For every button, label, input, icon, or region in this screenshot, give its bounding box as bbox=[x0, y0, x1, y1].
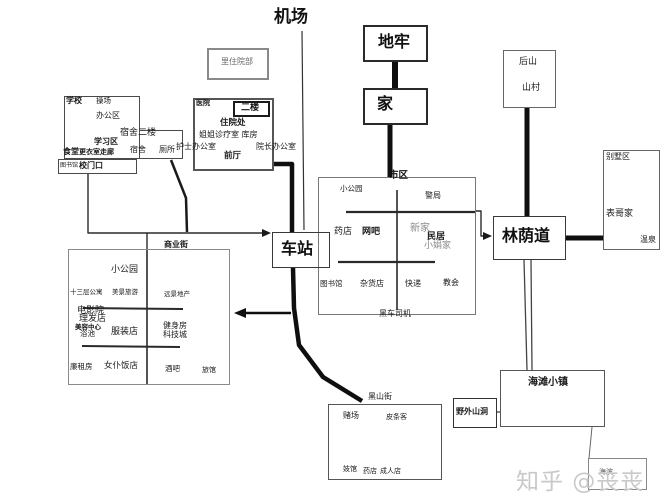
inpatient-office-label: 住院处 bbox=[220, 119, 246, 128]
adult-store-label: 成人店 bbox=[380, 468, 401, 476]
sister-clinic-label: 姐姐诊疗室 库房 bbox=[199, 131, 258, 140]
boulevard-label: 林荫道 bbox=[502, 227, 550, 245]
director-office-label: 院长办公室 bbox=[256, 143, 296, 152]
zhihu-watermark: 知乎 @丧丧者 bbox=[516, 462, 666, 500]
downtown-pharmacy-label: 药店 bbox=[334, 228, 352, 238]
dungeon-label: 地牢 bbox=[378, 33, 410, 51]
brothel-label: 妓馆 bbox=[343, 466, 357, 474]
boulevard-beach-road-1 bbox=[524, 260, 527, 370]
office-area-label: 办公区 bbox=[96, 112, 120, 121]
downtown-label: 市区 bbox=[389, 171, 408, 181]
hospital-label: 医院 bbox=[196, 99, 210, 107]
downtown-library-label: 图书馆 bbox=[320, 280, 343, 288]
dorm-2f-label: 宿舍二楼 bbox=[120, 129, 156, 139]
hospital-station-link bbox=[274, 164, 292, 232]
airport-road bbox=[302, 31, 304, 230]
apartment-13f-label: 十三层公寓 bbox=[70, 289, 103, 296]
downtown-small-park-label: 小公园 bbox=[340, 185, 363, 193]
clothing-store-label: 服装店 bbox=[111, 328, 138, 338]
gate-station-road bbox=[88, 174, 264, 233]
home-label: 家 bbox=[377, 95, 393, 113]
school-label: 学校 bbox=[66, 96, 82, 105]
station-arrow bbox=[262, 229, 271, 237]
tech-city-label: 科技城 bbox=[163, 331, 187, 340]
cousin-home-label: 表哥家 bbox=[606, 210, 633, 220]
hotel-label: 旅馆 bbox=[202, 367, 216, 375]
boulevard-arrow bbox=[483, 232, 492, 240]
beach-seaside-link bbox=[589, 427, 592, 458]
toilet-label: 厕所 bbox=[159, 146, 175, 155]
school-gate-label: 校门口 bbox=[79, 161, 103, 170]
school-library-label: 图书馆 bbox=[60, 163, 78, 170]
police-label: 警局 bbox=[425, 192, 441, 201]
station-label: 车站 bbox=[281, 240, 313, 258]
villa-district-label: 别墅区 bbox=[606, 153, 630, 162]
outdoor-cave-label: 野外山洞 bbox=[456, 407, 488, 416]
blackhill-street-label: 黑山街 bbox=[368, 393, 392, 402]
playground-label: 操场 bbox=[96, 97, 111, 105]
study-area-label: 学习区 bbox=[94, 137, 118, 146]
commercial-street-label: 商业街 bbox=[164, 240, 188, 249]
map-diagram: 知乎 @丧丧者 机场地牢家车站林荫道学校操场办公区宿舍二楼学习区食堂更衣室走廊宿… bbox=[0, 0, 666, 500]
casino-label: 赌场 bbox=[343, 412, 359, 421]
beach-town-label: 海滩小镇 bbox=[528, 377, 568, 388]
second-floor-label: 二楼 bbox=[241, 104, 259, 114]
bar-label: 酒吧 bbox=[165, 365, 180, 373]
express-label: 快递 bbox=[405, 280, 421, 289]
downtown-box bbox=[318, 177, 476, 315]
nurse-office-label: 护士办公室 bbox=[176, 143, 216, 152]
low-rent-housing-label: 廉租房 bbox=[70, 363, 93, 371]
bath-house-label: 浴池 bbox=[80, 330, 95, 338]
home-box bbox=[363, 88, 428, 125]
commercial-small-park-label: 小公园 bbox=[111, 266, 138, 276]
downtown-boulevard-connector bbox=[476, 211, 487, 236]
realestate-label: 远景地产 bbox=[164, 291, 190, 298]
mountain-village-label: 山村 bbox=[522, 84, 540, 94]
school-diagonal-path bbox=[171, 160, 187, 232]
blackhill-pharmacy-label: 药店 bbox=[363, 468, 377, 476]
airport-label: 机场 bbox=[274, 8, 308, 27]
canteen-label: 食堂 bbox=[63, 147, 79, 156]
boulevard-beach-road-2 bbox=[531, 260, 532, 370]
backhill-label: 后山 bbox=[519, 58, 537, 68]
hot-spring-label: 温泉 bbox=[640, 236, 656, 245]
inner-inpatient-label: 里住院部 bbox=[221, 58, 253, 67]
front-hall-label: 前厅 bbox=[224, 152, 241, 161]
dorm-label: 宿舍 bbox=[130, 146, 146, 155]
scenic-travel-label: 美景旅游 bbox=[112, 289, 138, 296]
pimp-label: 皮条客 bbox=[386, 414, 407, 422]
maid-restaurant-label: 女仆饭店 bbox=[104, 362, 138, 371]
changing-corridor-label: 更衣室走廊 bbox=[79, 148, 114, 156]
xiaojuan-home-label: 小娟家 bbox=[424, 242, 451, 252]
internet-cafe-label: 网吧 bbox=[362, 228, 380, 238]
commercial-arrow bbox=[234, 308, 246, 318]
church-label: 教会 bbox=[443, 279, 459, 288]
grocery-label: 杂货店 bbox=[360, 280, 384, 289]
black-car-driver-label: 黑车司机 bbox=[379, 310, 411, 319]
